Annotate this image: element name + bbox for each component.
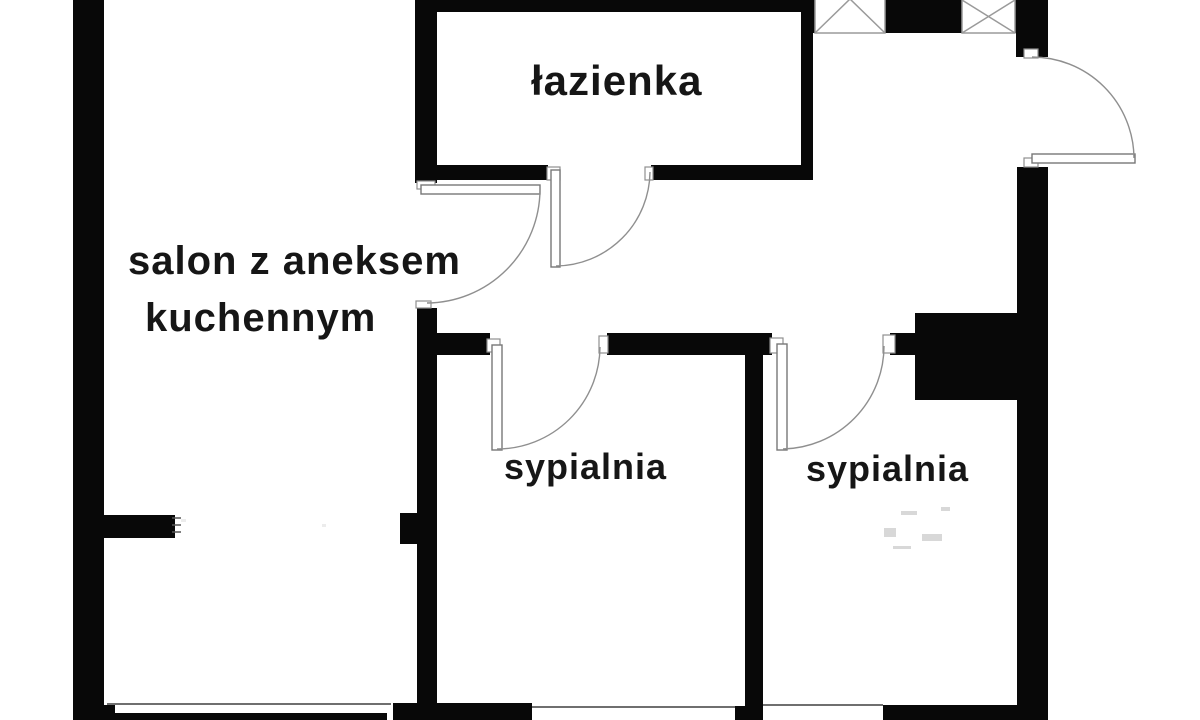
- floor-plan: łazienka salon z aneksem kuchennym sypia…: [0, 0, 1200, 720]
- faint-artifact: [884, 528, 896, 537]
- floor-plan-graphics: [0, 0, 1200, 720]
- wall-pillar-salon: [400, 513, 417, 544]
- door-arc-bedroom1: [497, 347, 600, 449]
- room-label-bedroom-2: sypialnia: [806, 451, 969, 487]
- door-leaf-bathroom: [551, 170, 560, 267]
- room-label-living-room-line2: kuchennym: [145, 298, 376, 338]
- room-label-bathroom: łazienka: [531, 60, 702, 102]
- faint-artifact: [922, 534, 942, 541]
- wall-bottom-between-bedrooms: [735, 706, 763, 720]
- wall-bottom-salon-sill: [115, 713, 387, 720]
- door-leaf-bedroom1: [492, 345, 502, 450]
- wall-bathroom-top: [415, 0, 813, 12]
- wall-bedroom1-top-right: [607, 333, 772, 355]
- faint-artifact: [893, 546, 911, 549]
- wall-between-bedrooms: [745, 355, 763, 707]
- wall-bathroom-bottom-left: [437, 165, 548, 180]
- wall-bathroom-bottom-right: [651, 165, 813, 180]
- faint-artifact: [941, 507, 950, 511]
- crossed-box-symbol: [815, 0, 885, 33]
- door-arc-entrance: [1032, 57, 1134, 158]
- faint-artifact: [322, 524, 326, 527]
- room-label-living-room-line1: salon z aneksem: [128, 241, 461, 281]
- wall-bottom-middle: [393, 703, 532, 720]
- wall-bathroom-right: [801, 0, 813, 170]
- door-leaf-salon: [421, 185, 540, 194]
- faint-artifact: [181, 519, 186, 522]
- door-leaf-entrance: [1032, 154, 1135, 163]
- faint-artifact: [901, 511, 917, 515]
- door-leaf-bedroom2: [777, 344, 787, 450]
- wall-left-foot: [73, 705, 115, 720]
- wall-bathroom-left: [415, 0, 437, 183]
- door-jamb: [645, 167, 653, 180]
- room-label-bedroom-1: sypialnia: [504, 449, 667, 485]
- door-arc-bathroom: [556, 172, 650, 266]
- wall-kitchen-stub: [104, 515, 175, 538]
- door-jamb: [883, 335, 895, 353]
- wall-salon-hall: [417, 308, 437, 720]
- door-jamb: [416, 301, 431, 308]
- wall-bedroom1-top-left: [437, 333, 490, 355]
- door-arc-bedroom2: [783, 346, 884, 449]
- wall-left-exterior: [73, 0, 104, 705]
- wall-block-bedroom2: [915, 313, 1017, 400]
- wall-right-exterior: [1017, 167, 1048, 720]
